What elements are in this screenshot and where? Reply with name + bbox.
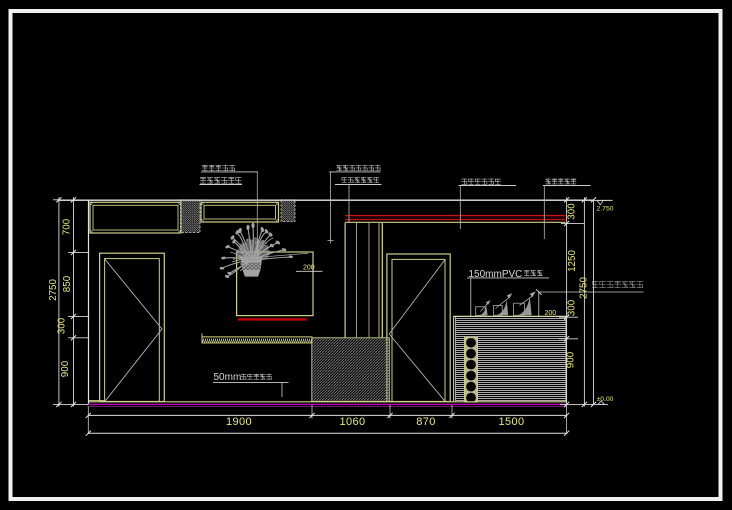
- svg-text:1900: 1900: [226, 416, 252, 428]
- svg-text:300: 300: [567, 203, 578, 220]
- svg-text:2.750: 2.750: [597, 206, 614, 213]
- svg-text:1250: 1250: [567, 250, 578, 272]
- svg-text:870: 870: [416, 416, 436, 428]
- svg-text:300: 300: [57, 317, 68, 334]
- svg-text:2750: 2750: [579, 277, 590, 299]
- svg-text:900: 900: [566, 351, 577, 368]
- svg-text:±0.00: ±0.00: [597, 396, 614, 403]
- svg-text:1500: 1500: [498, 416, 524, 428]
- svg-text:850: 850: [62, 275, 73, 292]
- svg-text:50mm: 50mm: [214, 372, 242, 383]
- svg-text:2750: 2750: [48, 279, 59, 301]
- svg-text:200: 200: [545, 310, 557, 317]
- svg-text:900: 900: [60, 360, 71, 377]
- svg-text:200: 200: [303, 265, 315, 272]
- svg-text:700: 700: [62, 218, 73, 235]
- svg-text:1060: 1060: [339, 416, 365, 428]
- svg-text:300: 300: [567, 299, 578, 316]
